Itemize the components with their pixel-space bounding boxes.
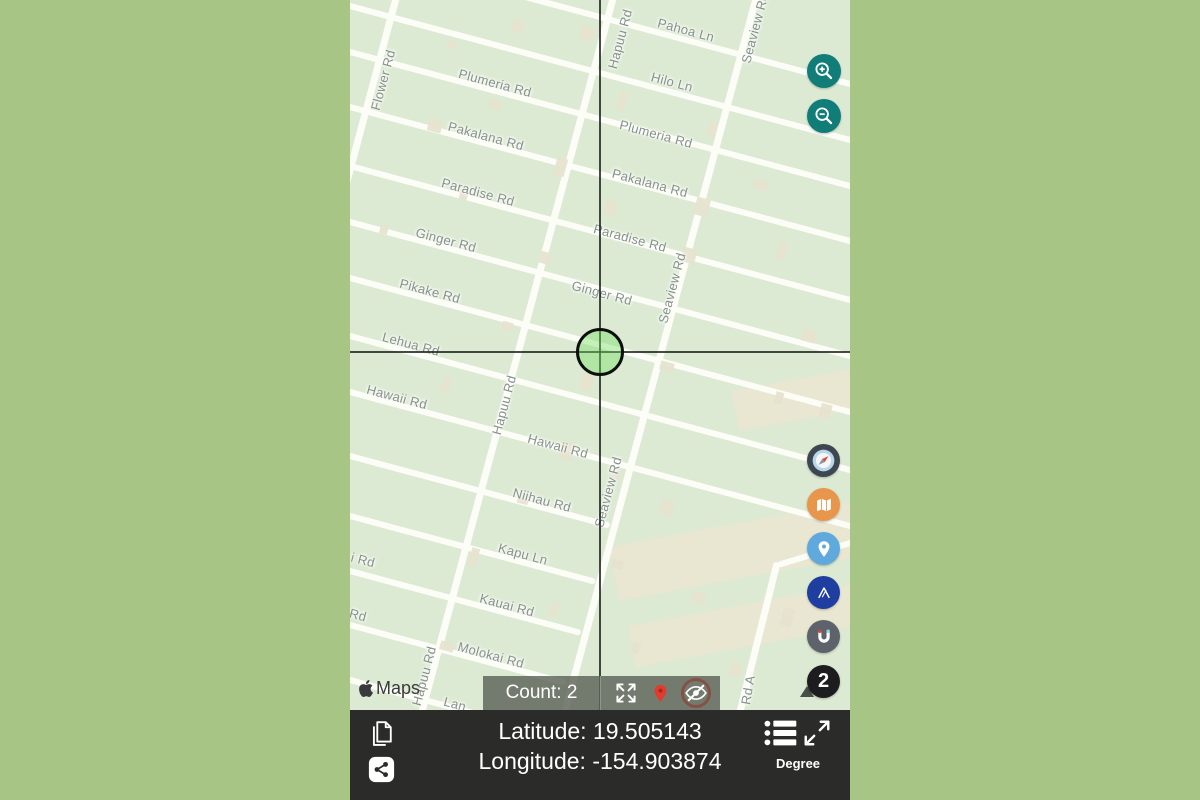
drop-pin-button[interactable] bbox=[650, 683, 671, 704]
street-label: Rd A bbox=[738, 674, 758, 706]
screen: Pahoa LnHilo LnPlumeria RdPakalana RdPar… bbox=[0, 0, 1200, 800]
street-label: Hapuu Rd bbox=[489, 374, 519, 437]
building bbox=[447, 39, 457, 50]
expand-map-button[interactable] bbox=[614, 681, 638, 705]
building bbox=[693, 196, 711, 217]
count-label: Count: 2 bbox=[483, 682, 600, 704]
magnet-u-icon bbox=[813, 626, 835, 648]
magnifier-plus-icon bbox=[813, 60, 835, 82]
folded-map-icon bbox=[814, 495, 834, 515]
building bbox=[603, 199, 618, 216]
building bbox=[578, 24, 595, 42]
navigation-button[interactable] bbox=[807, 576, 840, 609]
coordinate-bar: Latitude: 19.505143 Longitude: -154.9038… bbox=[350, 710, 850, 800]
field-parcel bbox=[731, 369, 850, 431]
building bbox=[511, 19, 525, 33]
street-label: Molokai Rd bbox=[456, 639, 526, 671]
copy-coordinates-button[interactable] bbox=[368, 718, 395, 750]
street-label: Pakalana Rd bbox=[611, 166, 690, 201]
copy-icon bbox=[368, 718, 395, 750]
building bbox=[753, 178, 769, 190]
location-pin-button[interactable] bbox=[807, 532, 840, 565]
map-canvas[interactable]: Pahoa LnHilo LnPlumeria RdPakalana RdPar… bbox=[350, 0, 850, 710]
pin-icon bbox=[814, 539, 834, 559]
street-label: Plumeria Rd bbox=[457, 66, 533, 100]
mountain-icon bbox=[814, 583, 834, 603]
map-style-button[interactable] bbox=[807, 488, 840, 521]
building bbox=[440, 377, 452, 394]
magnet-button[interactable] bbox=[807, 620, 840, 653]
count-badge-number: 2 bbox=[818, 670, 829, 693]
street-label: Paradise Rd bbox=[592, 221, 668, 255]
street-label: Pakalana Rd bbox=[447, 119, 526, 154]
building bbox=[501, 321, 514, 333]
street-label: Rd bbox=[350, 606, 368, 625]
street-label: Lan bbox=[442, 694, 468, 710]
share-icon bbox=[368, 756, 395, 783]
magnifier-minus-icon bbox=[813, 105, 835, 127]
building bbox=[728, 661, 743, 678]
compass-button[interactable] bbox=[807, 444, 840, 477]
building bbox=[658, 498, 675, 516]
count-badge[interactable]: 2 bbox=[807, 665, 840, 698]
street-label: i Rd bbox=[350, 550, 377, 571]
attribution-text: Maps bbox=[376, 678, 420, 699]
share-button[interactable] bbox=[368, 756, 395, 783]
apple-icon bbox=[359, 680, 373, 697]
longitude-value: Longitude: -154.903874 bbox=[430, 746, 770, 776]
building bbox=[616, 91, 628, 110]
red-pin-icon bbox=[650, 683, 671, 704]
coordinate-list-button[interactable] bbox=[764, 719, 798, 747]
unit-format-label: Degree bbox=[776, 756, 820, 771]
compass-icon bbox=[807, 444, 840, 477]
coordinates-display: Latitude: 19.505143 Longitude: -154.9038… bbox=[430, 716, 770, 776]
building bbox=[776, 241, 788, 260]
building bbox=[818, 403, 833, 420]
zoom-in-button[interactable] bbox=[807, 54, 841, 88]
street-label: Ginger Rd bbox=[570, 278, 634, 309]
list-icon bbox=[764, 719, 798, 747]
building bbox=[489, 99, 502, 111]
building bbox=[539, 251, 553, 265]
street-label: Plumeria Rd bbox=[618, 117, 694, 151]
resize-icon bbox=[802, 718, 832, 748]
building bbox=[548, 601, 560, 618]
expand-icon bbox=[614, 681, 638, 705]
crosshair-target-circle bbox=[576, 328, 624, 376]
hide-markers-button[interactable] bbox=[684, 681, 708, 705]
zoom-out-button[interactable] bbox=[807, 99, 841, 133]
map-attribution: Maps bbox=[359, 678, 420, 699]
building bbox=[691, 590, 708, 605]
app-window: Pahoa LnHilo LnPlumeria RdPakalana RdPar… bbox=[350, 0, 850, 800]
count-overlay-bar: Count: 2 bbox=[483, 676, 720, 710]
resize-panel-button[interactable] bbox=[802, 718, 832, 748]
latitude-value: Latitude: 19.505143 bbox=[430, 716, 770, 746]
street-label: Paradise Rd bbox=[440, 175, 516, 209]
red-ring bbox=[681, 678, 711, 708]
